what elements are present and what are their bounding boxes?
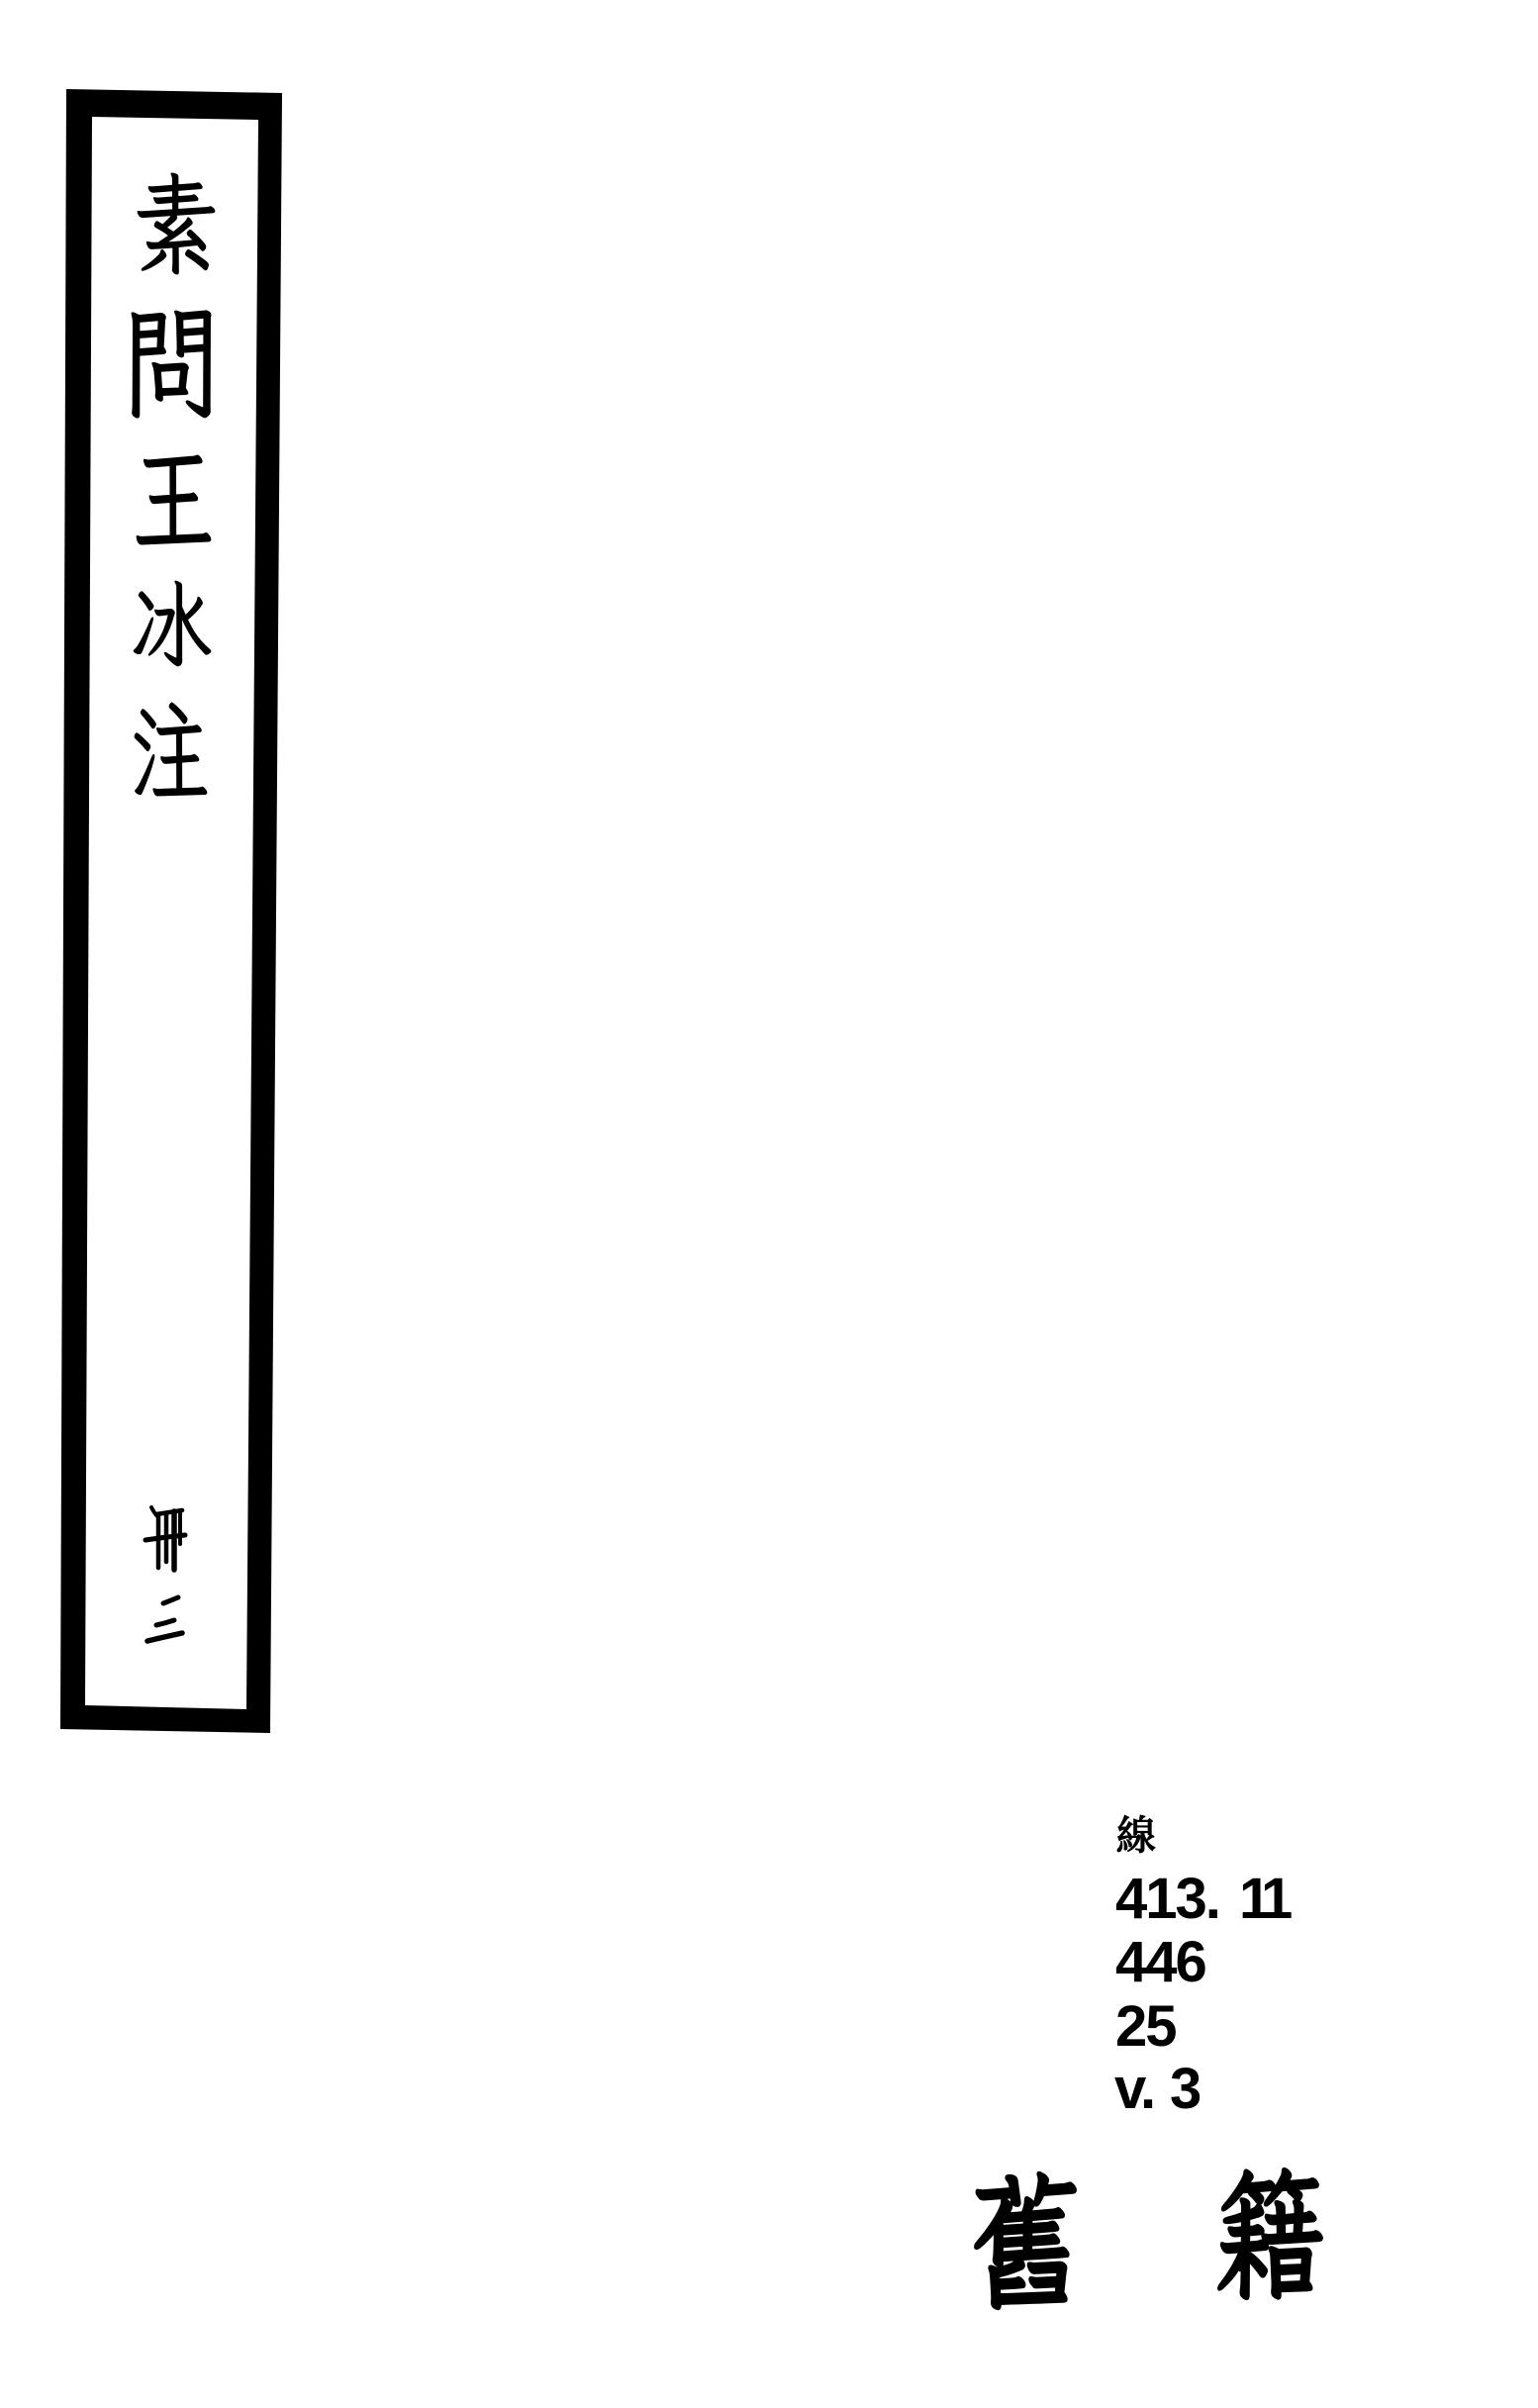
svg-text:11: 11 <box>1239 1867 1292 1931</box>
svg-text:413.: 413. <box>1115 1867 1219 1931</box>
svg-text:3: 3 <box>1170 2057 1201 2121</box>
svg-text:25: 25 <box>1115 1994 1176 2059</box>
svg-text:v.: v. <box>1114 2057 1154 2121</box>
svg-text:446: 446 <box>1115 1930 1206 1994</box>
